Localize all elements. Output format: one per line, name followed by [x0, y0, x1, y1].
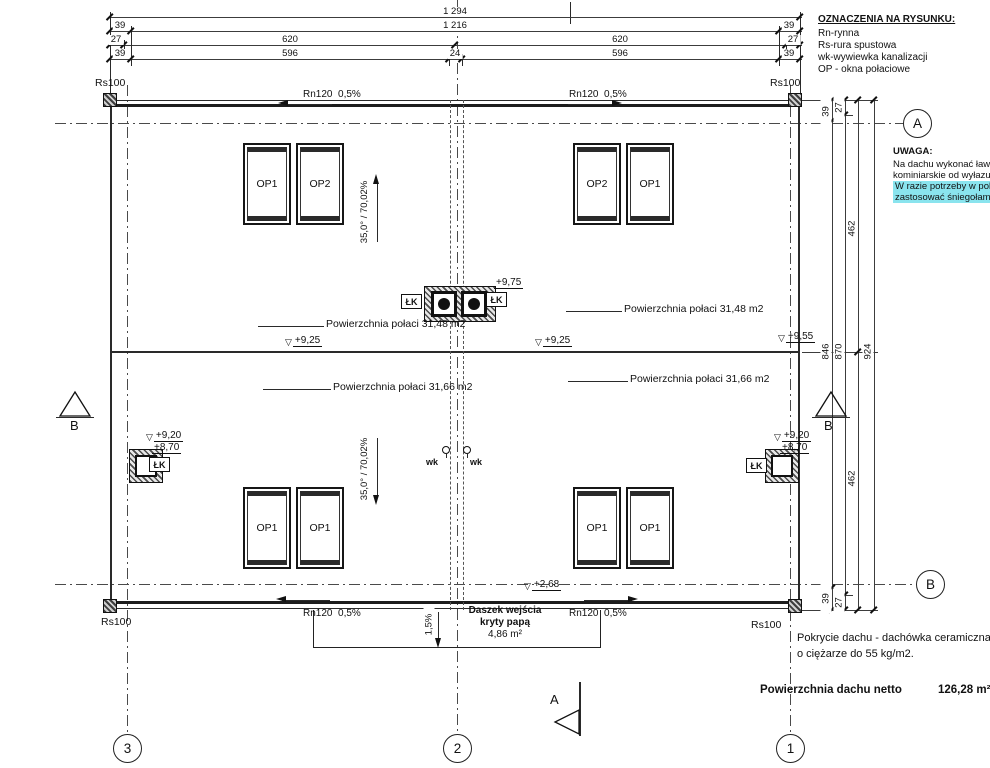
- roof-window: OP1: [243, 487, 291, 569]
- gutter-arrow: [282, 600, 330, 601]
- arrow-down-icon: [435, 638, 441, 648]
- dim-label: 39: [821, 97, 832, 127]
- elevation-mark: +9,75: [494, 277, 523, 289]
- dim-label: 24: [448, 49, 463, 59]
- net-roof-area-value: 126,28 m²: [938, 685, 990, 696]
- chimney-label: ŁK: [401, 294, 422, 309]
- arrow-right-icon: [628, 596, 638, 602]
- dim-line: [108, 31, 802, 32]
- leader-line: [568, 381, 628, 382]
- roof-gutter-line-top: [110, 104, 800, 107]
- roof-plan-drawing: 1 294 39 1 216 39 27 620 620 27 39 596 2…: [0, 0, 990, 768]
- elevation-triangle-icon: ▽: [146, 433, 153, 442]
- elevation-triangle-icon: ▽: [778, 334, 785, 343]
- downpipe-label: Rs100: [751, 620, 781, 631]
- roof-window-label: OP1: [245, 145, 289, 223]
- grid-axis-bubble: 2: [443, 734, 472, 763]
- dim-label: 39: [782, 49, 797, 59]
- roof-area-label: Powierzchnia połaci 31,48 m2: [624, 304, 764, 315]
- ridge-line: [110, 351, 800, 353]
- roof-verge-line-left: [110, 100, 112, 610]
- elevation-value: +2,68: [532, 579, 561, 591]
- leader-line: [566, 311, 622, 312]
- section-a-label: A: [550, 694, 559, 705]
- canopy-area-label: 4,86 m²: [462, 629, 548, 640]
- chimney-label: ŁK: [486, 292, 507, 307]
- elevation-mark: ▽+9,25: [285, 335, 322, 347]
- downpipe-label: Rs100: [101, 617, 131, 628]
- downpipe-symbol: [103, 599, 117, 613]
- dim-label: 596: [280, 49, 300, 59]
- note-line: Na dachu wykonać ławy i s: [893, 159, 990, 170]
- downpipe-symbol: [103, 93, 117, 107]
- dim-label: 27: [109, 35, 124, 45]
- roof-window: OP1: [243, 143, 291, 225]
- vent-label: wk: [470, 457, 482, 468]
- section-b-label: B: [824, 420, 833, 431]
- grid-axis-number: 3: [124, 741, 132, 756]
- section-b-bubble: B: [916, 570, 945, 599]
- section-a-triangle-icon: [553, 708, 581, 736]
- roof-area-label: Powierzchnia połaci 31,66 m2: [630, 374, 770, 385]
- grid-axis-1-line: [790, 85, 791, 733]
- downpipe-label: Rs100: [770, 78, 800, 89]
- section-b-axis-line: [55, 584, 916, 585]
- elevation-mark: +8,70: [152, 442, 181, 454]
- gutter-arrow: [584, 600, 632, 601]
- section-a-axis-line: [55, 123, 903, 124]
- vent-label: wk: [426, 457, 438, 468]
- note-line-highlighted: W razie potrzeby w pokryc: [893, 181, 990, 192]
- roof-window-label: OP1: [628, 489, 672, 567]
- arrow-left-icon: [278, 100, 288, 106]
- dim-label: 1 216: [441, 21, 469, 31]
- elevation-mark: ▽+9,20: [774, 430, 811, 442]
- legend-item: Rn-rynna: [818, 28, 859, 39]
- dim-label: 846: [821, 337, 832, 367]
- roof-area-label: Powierzchnia połaci 31,66 m2: [333, 382, 473, 393]
- dim-label: 27: [786, 35, 801, 45]
- grid-axis-number: 1: [787, 741, 795, 756]
- section-b-label: B: [70, 420, 79, 431]
- arrow-up-icon: [373, 174, 379, 184]
- arrow-down-icon: [373, 495, 379, 505]
- dim-label: 39: [113, 21, 128, 31]
- roof-window-label: OP1: [245, 489, 289, 567]
- chimney-flue: [461, 291, 487, 317]
- downpipe-symbol: [788, 599, 802, 613]
- legend-item: wk-wywiewka kanalizacji: [818, 52, 927, 63]
- roof-window-label: OP1: [298, 489, 342, 567]
- elevation-value: +9,55: [786, 331, 815, 343]
- roof-window: OP1: [296, 487, 344, 569]
- legend-item: OP - okna połaciowe: [818, 64, 910, 75]
- section-a-bubble: A: [903, 109, 932, 138]
- elevation-mark: ▽+9,20: [146, 430, 183, 442]
- dim-label: 596: [610, 49, 630, 59]
- roof-window-label: OP2: [575, 145, 619, 223]
- roof-area-label: Powierzchnia połaci 31,48 m2: [326, 319, 466, 330]
- dim-line: [845, 100, 846, 610]
- canopy-label-line1: Daszek wejścia: [462, 605, 548, 616]
- elevation-value: +9,20: [782, 430, 811, 442]
- slope-arrow-up: [377, 182, 378, 242]
- elevation-mark: +8,70: [780, 442, 809, 454]
- dim-label: 39: [821, 584, 832, 614]
- elevation-value: +9,20: [154, 430, 183, 442]
- dim-label: 39: [113, 49, 128, 59]
- gutter-label: Rn120 0,5%: [303, 89, 361, 100]
- section-b-label: B: [926, 577, 935, 592]
- section-a-top-tick: [570, 2, 571, 24]
- leader-line: [263, 389, 331, 390]
- dim-label: 620: [610, 35, 630, 45]
- dim-label: 620: [280, 35, 300, 45]
- chimney-label: ŁK: [149, 457, 170, 472]
- roof-window-label: OP1: [575, 489, 619, 567]
- hidden-wall-line: [450, 100, 451, 610]
- leader-line: [258, 326, 324, 327]
- canopy-slope-label: 1,5%: [424, 608, 435, 642]
- section-b-triangle-icon: [58, 390, 92, 418]
- gutter-label: Rn120 0,5%: [303, 608, 361, 619]
- elevation-triangle-icon: ▽: [524, 582, 531, 591]
- elevation-value: +8,70: [152, 442, 181, 454]
- dim-label: 924: [863, 337, 874, 367]
- roof-window: OP1: [573, 487, 621, 569]
- downpipe-symbol: [788, 93, 802, 107]
- elevation-triangle-icon: ▽: [285, 338, 292, 347]
- gutter-label: Rn120 0,5%: [569, 608, 627, 619]
- section-b-triangle-icon: [814, 390, 848, 418]
- grid-axis-number: 2: [454, 741, 462, 756]
- roof-covering-note-line1: Pokrycie dachu - dachówka ceramiczna: [797, 633, 990, 644]
- dim-label: 27: [834, 93, 845, 123]
- dim-label: 462: [847, 214, 858, 244]
- roof-eave-line-top: [110, 100, 800, 101]
- grid-axis-bubble: 3: [113, 734, 142, 763]
- elevation-mark: ▽+9,55: [778, 331, 815, 343]
- grid-axis-3-line: [127, 85, 128, 733]
- chimney-right: [765, 449, 799, 483]
- chimney-flue: [431, 291, 457, 317]
- grid-axis-bubble: 1: [776, 734, 805, 763]
- gutter-label: Rn120 0,5%: [569, 89, 627, 100]
- chimney-label: ŁK: [746, 458, 767, 473]
- roof-window: OP1: [626, 487, 674, 569]
- dim-label: 462: [847, 464, 858, 494]
- elevation-value: +9,75: [494, 277, 523, 289]
- roof-window-label: OP2: [298, 145, 342, 223]
- legend-title: OZNACZENIA NA RYSUNKU:: [818, 14, 955, 25]
- hidden-wall-line: [463, 100, 464, 610]
- elevation-value: +9,25: [543, 335, 572, 347]
- dim-label: 1 294: [441, 7, 469, 17]
- dim-label: 27: [834, 588, 845, 618]
- roof-window: OP2: [296, 143, 344, 225]
- arrow-left-icon: [276, 596, 286, 602]
- roof-window: OP1: [626, 143, 674, 225]
- note-line: kominiarskie od wyłazu da: [893, 170, 990, 181]
- roof-window: OP2: [573, 143, 621, 225]
- section-a-label: A: [913, 116, 922, 131]
- roof-gutter-line-bottom: [110, 601, 800, 604]
- dim-label: 870: [834, 337, 845, 367]
- legend-item: Rs-rura spustowa: [818, 40, 896, 51]
- gutter-arrow: [568, 104, 616, 105]
- downpipe-label: Rs100: [95, 78, 125, 89]
- canopy-label-line2: kryty papą: [462, 617, 548, 628]
- dim-line: [874, 100, 875, 610]
- dim-line: [108, 59, 802, 60]
- roof-eave-line-bottom: [110, 608, 800, 609]
- elevation-triangle-icon: ▽: [535, 338, 542, 347]
- roof-verge-line-right: [798, 100, 800, 610]
- slope-label: 35,0° / 70,02%: [359, 169, 371, 255]
- note-line-highlighted: zastosować śniegołamacz: [893, 192, 990, 203]
- roof-window-label: OP1: [628, 145, 672, 223]
- vent-stack-icon: [442, 446, 450, 454]
- arrow-right-icon: [612, 100, 622, 106]
- vent-stem: [446, 454, 447, 458]
- dim-line: [858, 100, 859, 610]
- gutter-arrow: [284, 104, 332, 105]
- dim-line: [108, 17, 802, 18]
- elevation-mark: ▽+9,25: [535, 335, 572, 347]
- dim-label: 39: [782, 21, 797, 31]
- elevation-value: +8,70: [780, 442, 809, 454]
- vent-stack-icon: [463, 446, 471, 454]
- dim-witness-line: [131, 26, 132, 66]
- slope-arrow-down: [377, 438, 378, 498]
- elevation-mark: ▽+2,68: [524, 579, 561, 591]
- dim-witness-line: [779, 26, 780, 66]
- elevation-triangle-icon: ▽: [774, 433, 781, 442]
- elevation-value: +9,25: [293, 335, 322, 347]
- slope-label: 35,0° / 70,02%: [359, 426, 371, 512]
- note-title: UWAGA:: [893, 146, 933, 157]
- roof-covering-note-line2: o ciężarze do 55 kg/m2.: [797, 649, 914, 660]
- net-roof-area-label: Powierzchnia dachu netto: [760, 685, 902, 696]
- vent-stem: [467, 454, 468, 458]
